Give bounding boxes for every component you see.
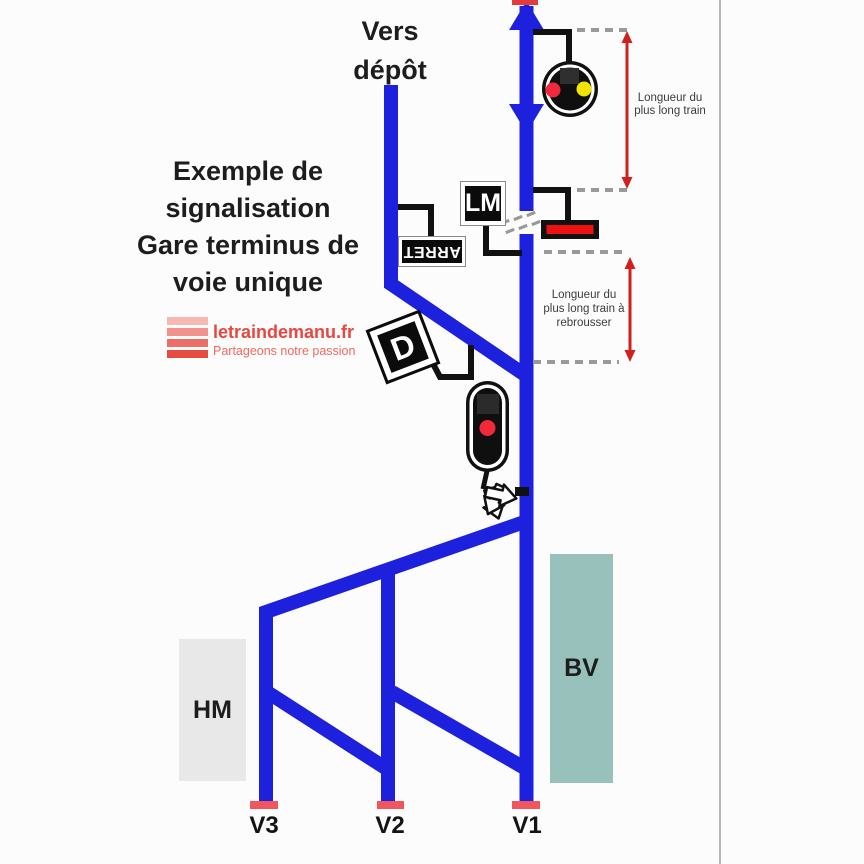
bracket-arret [398, 207, 431, 237]
yellow-lamp [577, 82, 592, 97]
page-edge-line [719, 0, 721, 864]
track-gap-hatch [500, 211, 541, 234]
title-line3: Gare terminus de [118, 227, 378, 264]
track-v3 [266, 521, 527, 803]
diagram-title: Exemple de signalisation Gare terminus d… [118, 153, 378, 301]
depot-label-line1: Vers [338, 12, 442, 51]
buffer-stops [250, 801, 540, 809]
oval-signal-icon [466, 381, 509, 489]
bracket-disc-signal [533, 32, 569, 63]
track-label-v1: V1 [497, 812, 557, 840]
stop-lamp-icon [541, 220, 599, 239]
red-lamp [546, 83, 561, 98]
hm-building: HM [179, 639, 246, 781]
disc-signal-icon [542, 61, 598, 117]
logo-stripes-icon [167, 317, 208, 361]
buffer-v1 [512, 801, 540, 809]
depot-label: Vers dépôt [338, 12, 442, 90]
arrow-down-icon [509, 104, 544, 133]
depot-label-line2: dépôt [338, 51, 442, 90]
bracket-lm [486, 225, 522, 253]
crossover-v3-v2 [264, 690, 390, 771]
logo-site-name: letraindemanu.fr [213, 322, 354, 343]
title-line2: signalisation [118, 190, 378, 227]
bv-building: BV [550, 554, 613, 783]
measure-label-top: Longueur du plus long train [622, 92, 718, 117]
title-line4: voie unique [118, 264, 378, 301]
stop-lamp-red-bar [547, 225, 594, 234]
red-lamp [480, 420, 496, 436]
signal-hood [560, 68, 579, 84]
arret-sign: ARRET [399, 237, 465, 266]
buffer-v3 [250, 801, 278, 809]
track-label-v2: V2 [360, 812, 420, 840]
track-schematic [0, 0, 864, 864]
arrow-mount [515, 487, 529, 496]
logo-tagline: Partageons notre passion [213, 344, 355, 358]
title-line1: Exemple de [118, 153, 378, 190]
buffer-v2 [377, 801, 404, 809]
track-label-v3: V3 [234, 812, 294, 840]
arrow-up-icon [509, 1, 544, 30]
bracket-stop-lamp [533, 190, 568, 222]
top-red-fragment [512, 0, 538, 5]
lm-sign: LM [461, 182, 505, 225]
crossover-v2-v1 [392, 692, 528, 770]
unlit-lamp [477, 394, 499, 414]
signalling-diagram: Vers dépôt Exemple de signalisation Gare… [0, 0, 864, 864]
measure-label-bottom: Longueur du plus long train à rebrousser [534, 288, 634, 330]
